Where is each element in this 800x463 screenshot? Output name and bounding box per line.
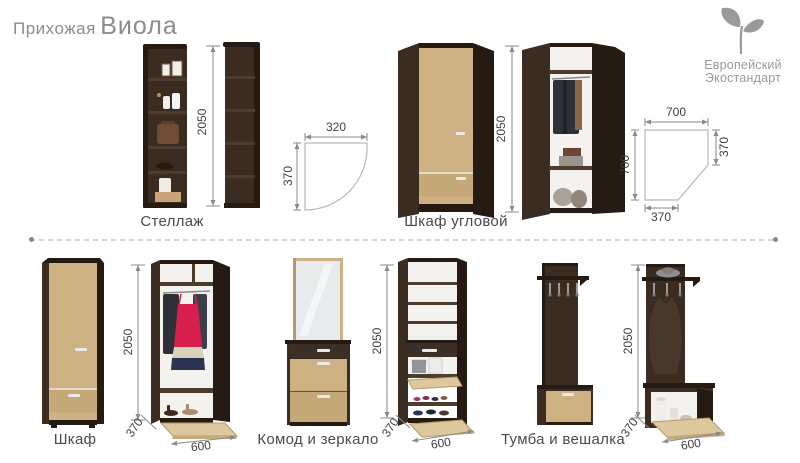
dim-plan-depth: 370 [281,166,295,186]
catalog-page: Прихожая Виола Европейский Экостандарт [0,0,800,463]
label-shelving: Стеллаж [122,213,222,230]
corner-wardrobe-drawing: 2050 [393,36,633,228]
wardrobe-open [151,260,237,439]
dresser-open [398,258,474,437]
eco-logo-line2: Экостандарт [692,72,794,85]
shoe-panel-open [161,423,237,436]
corner-plan-dim-left: 700 [618,130,639,200]
corner-plan-dim-top: 700 [645,105,708,126]
hallstand-closed [537,263,593,425]
red-dress [174,304,202,347]
hanging-clothes [553,80,582,134]
hallstand-drawing: 2050 [510,252,760,452]
corner-plan-dim-right: 370 [712,130,731,165]
label-hallstand: Тумба и вешалка [493,431,633,448]
label-corner-wardrobe: Шкаф угловой [396,213,516,230]
corner-height-dim: 2050 [494,46,519,212]
dim-height: 2050 [195,108,209,135]
dim-width: 600 [680,436,702,453]
shelving-plan: 320 370 [281,120,367,210]
eco-logo: Европейский Экостандарт [692,4,794,85]
shelving-empty [223,42,260,208]
svg-text:700: 700 [666,105,686,119]
wardrobe-drawing: 2050 [35,252,250,452]
dim-height: 2050 [121,328,135,355]
title-prefix: Прихожая [13,19,96,38]
svg-text:700: 700 [618,155,632,175]
svg-text:370: 370 [651,210,671,224]
corner-wardrobe-open [522,43,625,220]
shelving-decorated [143,44,187,208]
hallstand-height-dim: 2050 [621,265,645,418]
mirror [293,258,343,343]
shoe-flap-open [408,377,462,389]
dim-height: 2050 [494,115,508,142]
dim-width: 600 [430,435,452,452]
svg-text:370: 370 [717,137,731,157]
wardrobe-closed [42,258,104,428]
corner-plan-dim-bottom: 370 [645,204,678,224]
wardrobe-height-dim: 2050 [121,265,145,420]
dim-depth: 370 [123,415,146,440]
corner-plan-drawing: 700 370 700 370 [620,105,755,227]
shoes-row [413,410,449,416]
dresser-height-dim: 2050 [370,265,394,418]
shelving-height-dim: 2050 [195,46,220,206]
heels-row [414,396,448,401]
sprout-icon [692,4,794,54]
shelving-unit-drawing: 2050 320 370 [135,36,385,228]
dim-width: 600 [190,438,212,454]
dresser-mirror-drawing: 2050 [265,252,480,452]
decor-bag [157,121,179,144]
label-dresser-mirror: Комод и зеркало [248,431,388,448]
section-divider [30,239,778,241]
dresser-closed [285,258,351,426]
divider-dot-left [29,237,34,242]
dim-height: 2050 [621,327,635,354]
corner-plan-shape [645,130,708,200]
dim-plan-width: 320 [326,120,346,134]
hallstand-open [642,264,725,440]
corner-wardrobe-closed [398,43,494,218]
divider-dot-right [773,237,778,242]
label-wardrobe: Шкаф [25,431,125,448]
dim-height: 2050 [370,327,384,354]
